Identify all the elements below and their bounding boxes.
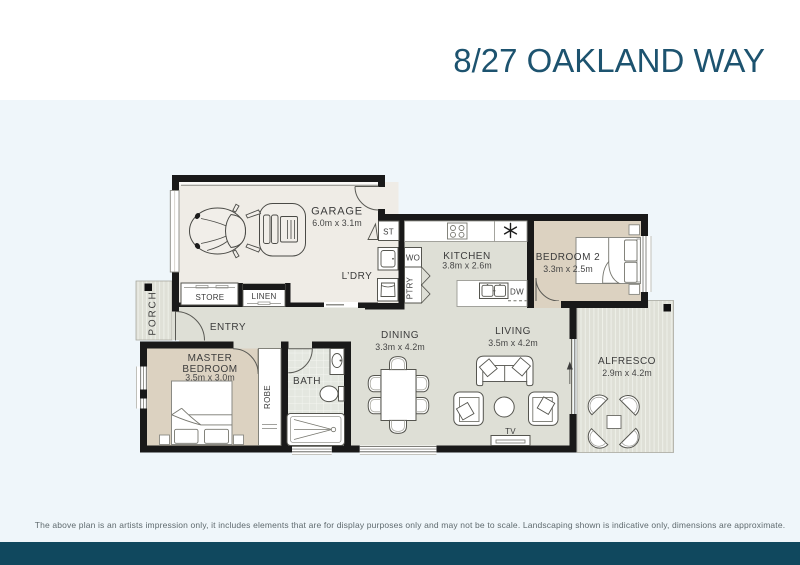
svg-text:BATH: BATH xyxy=(293,376,321,387)
svg-text:ALFRESCO: ALFRESCO xyxy=(598,356,656,367)
svg-text:ST: ST xyxy=(383,228,394,237)
svg-text:ROBE: ROBE xyxy=(263,385,272,409)
svg-text:3.8m x 2.6m: 3.8m x 2.6m xyxy=(442,261,492,271)
svg-text:3.3m x 2.5m: 3.3m x 2.5m xyxy=(543,264,593,274)
svg-text:WO: WO xyxy=(406,254,420,263)
svg-text:3.3m x 4.2m: 3.3m x 4.2m xyxy=(375,342,425,352)
svg-text:3.5m x 3.0m: 3.5m x 3.0m xyxy=(185,373,235,383)
svg-text:ENTRY: ENTRY xyxy=(210,322,246,333)
svg-text:2.9m x 4.2m: 2.9m x 4.2m xyxy=(602,368,652,378)
svg-text:L’DRY: L’DRY xyxy=(342,271,373,282)
svg-text:6.0m x 3.1m: 6.0m x 3.1m xyxy=(312,218,362,228)
svg-text:GARAGE: GARAGE xyxy=(311,206,363,218)
svg-text:DINING: DINING xyxy=(381,330,419,341)
svg-text:DW: DW xyxy=(510,288,524,297)
svg-text:BEDROOM 2: BEDROOM 2 xyxy=(536,252,601,263)
svg-text:3.5m x 4.2m: 3.5m x 4.2m xyxy=(488,338,538,348)
svg-text:STORE: STORE xyxy=(196,293,225,302)
svg-text:PORCH: PORCH xyxy=(148,290,159,335)
svg-text:PTRY: PTRY xyxy=(406,276,415,299)
svg-text:MASTER: MASTER xyxy=(188,353,233,364)
svg-text:TV: TV xyxy=(505,427,516,436)
svg-text:LIVING: LIVING xyxy=(495,326,531,337)
svg-text:LINEN: LINEN xyxy=(251,292,276,301)
